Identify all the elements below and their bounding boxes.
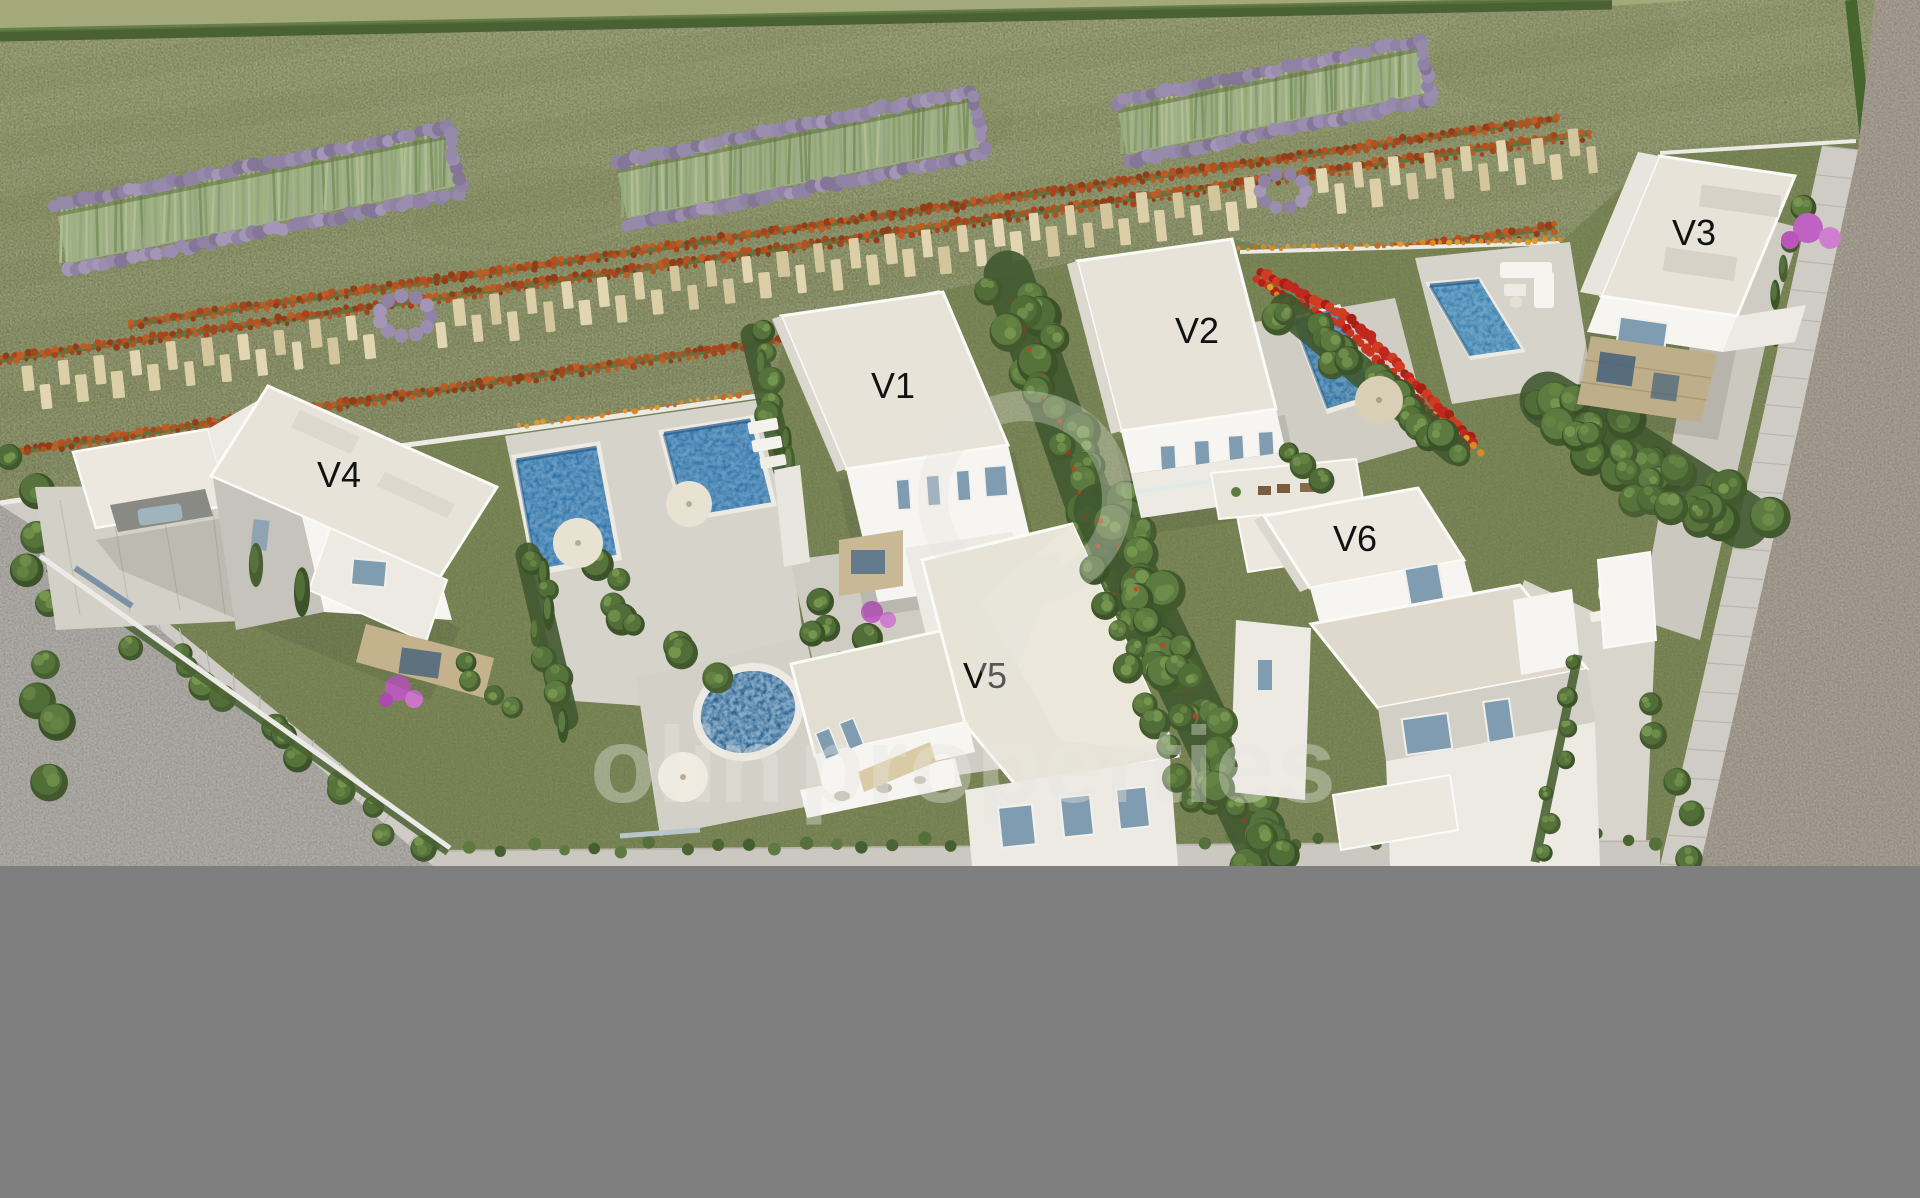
svg-text:V1: V1 [871, 365, 915, 406]
svg-text:V2: V2 [1175, 310, 1219, 351]
svg-text:V3: V3 [1672, 212, 1716, 253]
svg-text:olin: olin [590, 704, 786, 825]
svg-text:V4: V4 [317, 454, 361, 495]
svg-text:V6: V6 [1333, 518, 1377, 559]
svg-text:properties: properties [799, 704, 1337, 825]
